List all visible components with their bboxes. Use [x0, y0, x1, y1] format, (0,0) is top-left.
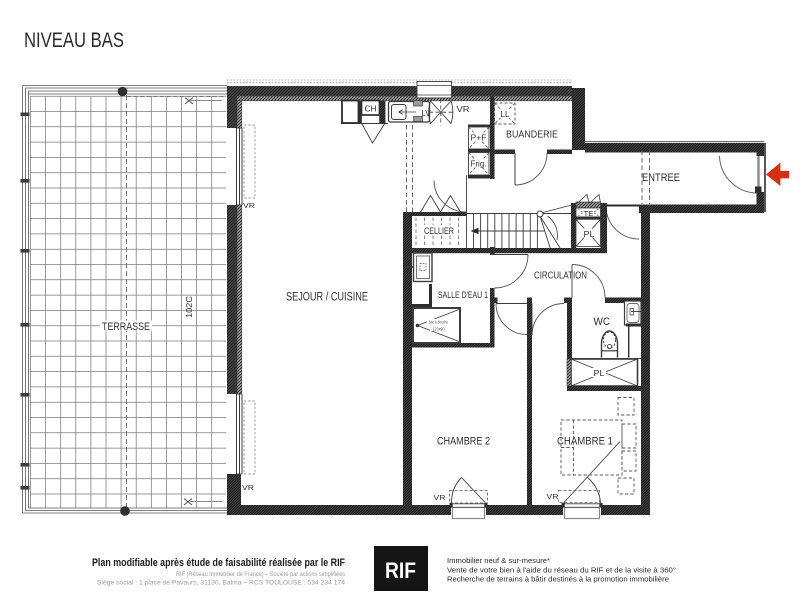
svg-text:VR: VR — [457, 104, 470, 114]
svg-text:Vente de votre bien à l'aide d: Vente de votre bien à l'aide du réseau d… — [447, 566, 676, 575]
svg-text:Frig.: Frig. — [471, 160, 487, 169]
svg-text:Plan modifiable après étude de: Plan modifiable après étude de faisabili… — [92, 557, 345, 569]
svg-text:NIVEAU BAS: NIVEAU BAS — [24, 29, 124, 52]
svg-text:VR: VR — [242, 483, 255, 492]
svg-text:CIRCULATION: CIRCULATION — [534, 271, 587, 282]
svg-text:VR: VR — [243, 201, 256, 210]
svg-text:WC: WC — [594, 316, 611, 328]
svg-text:120x90: 120x90 — [433, 327, 445, 332]
svg-text:Immobilier neuf & sur-mesure*: Immobilier neuf & sur-mesure* — [447, 556, 550, 565]
svg-text:102C: 102C — [184, 296, 194, 318]
svg-text:LL: LL — [501, 110, 511, 119]
svg-text:CHAMBRE 2: CHAMBRE 2 — [437, 436, 490, 448]
svg-text:SALLE D'EAU 1: SALLE D'EAU 1 — [438, 290, 488, 300]
svg-text:SEJOUR / CUISINE: SEJOUR / CUISINE — [286, 292, 368, 304]
svg-text:P+F: P+F — [471, 134, 487, 143]
svg-text:RIF (Réseau Immobilier de Fran: RIF (Réseau Immobilier de France) – Soci… — [176, 571, 345, 578]
svg-text:CHAMBRE 1: CHAMBRE 1 — [557, 436, 613, 448]
svg-text:Recherche de terrains à bâtir: Recherche de terrains à bâtir destinés à… — [447, 575, 669, 584]
svg-text:CELLIER: CELLIER — [424, 226, 454, 237]
svg-text:LV: LV — [422, 108, 431, 118]
svg-text:CH: CH — [365, 105, 377, 114]
svg-text:ENTREE: ENTREE — [642, 172, 680, 184]
svg-text:VR: VR — [434, 493, 447, 502]
svg-text:BUANDERIE: BUANDERIE — [506, 129, 558, 141]
svg-text:PL: PL — [594, 368, 605, 378]
svg-text:RIF: RIF — [385, 558, 416, 583]
svg-text:bac à douche: bac à douche — [429, 320, 448, 325]
svg-text:TERRASSE: TERRASSE — [102, 321, 150, 333]
svg-text:VR: VR — [547, 492, 560, 501]
svg-text:Siège social : 1 place de Pava: Siège social : 1 place de Pavaurs, 31130… — [97, 580, 345, 587]
svg-text:PL: PL — [584, 229, 595, 239]
